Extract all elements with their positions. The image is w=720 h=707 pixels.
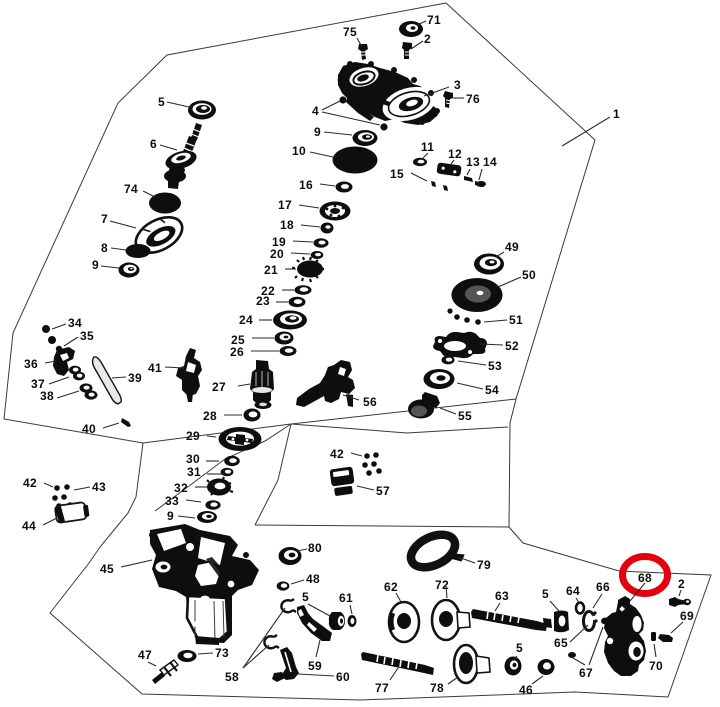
svg-text:63: 63 (495, 589, 509, 603)
svg-text:43: 43 (92, 480, 106, 494)
svg-text:5: 5 (158, 95, 165, 109)
svg-text:79: 79 (477, 558, 491, 572)
svg-text:65: 65 (554, 636, 568, 650)
svg-text:32: 32 (174, 481, 188, 495)
svg-text:71: 71 (427, 13, 441, 27)
svg-text:54: 54 (485, 383, 499, 397)
svg-text:20: 20 (270, 247, 284, 261)
svg-text:1: 1 (613, 107, 620, 121)
svg-text:30: 30 (186, 452, 200, 466)
svg-text:66: 66 (596, 580, 610, 594)
svg-text:8: 8 (101, 241, 108, 255)
svg-text:57: 57 (376, 484, 390, 498)
svg-text:12: 12 (448, 147, 462, 161)
svg-text:5: 5 (542, 587, 549, 601)
svg-text:10: 10 (292, 144, 306, 158)
svg-text:40: 40 (82, 422, 96, 436)
svg-text:15: 15 (390, 167, 404, 181)
svg-text:14: 14 (483, 155, 497, 169)
svg-text:75: 75 (343, 25, 357, 39)
svg-text:51: 51 (509, 313, 523, 327)
svg-text:23: 23 (256, 294, 270, 308)
svg-text:47: 47 (138, 648, 152, 662)
svg-text:5: 5 (516, 641, 523, 655)
svg-text:29: 29 (186, 429, 200, 443)
svg-text:70: 70 (649, 659, 663, 673)
svg-text:26: 26 (230, 345, 244, 359)
svg-text:16: 16 (299, 178, 313, 192)
svg-text:61: 61 (339, 591, 353, 605)
svg-text:4: 4 (312, 104, 319, 118)
svg-text:72: 72 (435, 578, 449, 592)
svg-text:2: 2 (678, 577, 685, 591)
svg-text:49: 49 (505, 240, 519, 254)
svg-text:17: 17 (278, 198, 292, 212)
svg-text:7: 7 (101, 212, 108, 226)
svg-text:31: 31 (187, 465, 201, 479)
svg-text:5: 5 (302, 590, 309, 604)
svg-text:21: 21 (264, 263, 278, 277)
svg-text:68: 68 (638, 571, 652, 585)
svg-text:33: 33 (165, 494, 179, 508)
svg-text:80: 80 (308, 541, 322, 555)
svg-text:41: 41 (148, 361, 162, 375)
svg-text:13: 13 (466, 155, 480, 169)
svg-text:42: 42 (330, 447, 344, 461)
svg-text:3: 3 (454, 78, 461, 92)
svg-text:9: 9 (314, 125, 321, 139)
svg-text:42: 42 (23, 476, 37, 490)
svg-text:74: 74 (124, 182, 138, 196)
svg-text:53: 53 (488, 359, 502, 373)
svg-text:27: 27 (212, 380, 226, 394)
svg-text:9: 9 (92, 258, 99, 272)
svg-text:28: 28 (203, 409, 217, 423)
svg-text:9: 9 (167, 509, 174, 523)
svg-text:77: 77 (375, 681, 389, 695)
svg-text:11: 11 (421, 140, 434, 154)
svg-text:55: 55 (458, 409, 472, 423)
svg-text:73: 73 (215, 646, 229, 660)
svg-text:67: 67 (579, 666, 593, 680)
svg-text:24: 24 (239, 313, 253, 327)
svg-text:38: 38 (40, 389, 54, 403)
svg-text:76: 76 (466, 92, 480, 106)
svg-text:36: 36 (24, 357, 38, 371)
svg-text:18: 18 (280, 218, 294, 232)
svg-text:78: 78 (430, 681, 444, 695)
svg-text:52: 52 (505, 339, 519, 353)
svg-text:44: 44 (22, 519, 36, 533)
svg-text:48: 48 (306, 572, 320, 586)
svg-text:39: 39 (128, 371, 142, 385)
svg-text:45: 45 (100, 562, 114, 576)
svg-text:56: 56 (363, 395, 377, 409)
svg-text:62: 62 (384, 580, 398, 594)
svg-text:34: 34 (68, 316, 82, 330)
svg-text:64: 64 (566, 584, 580, 598)
svg-text:59: 59 (308, 659, 322, 673)
svg-text:60: 60 (336, 670, 350, 684)
svg-text:46: 46 (519, 683, 533, 697)
svg-text:6: 6 (150, 137, 157, 151)
svg-text:69: 69 (680, 609, 694, 623)
svg-text:58: 58 (225, 670, 239, 684)
svg-text:2: 2 (424, 32, 431, 46)
svg-text:50: 50 (522, 268, 536, 282)
svg-text:35: 35 (80, 329, 94, 343)
